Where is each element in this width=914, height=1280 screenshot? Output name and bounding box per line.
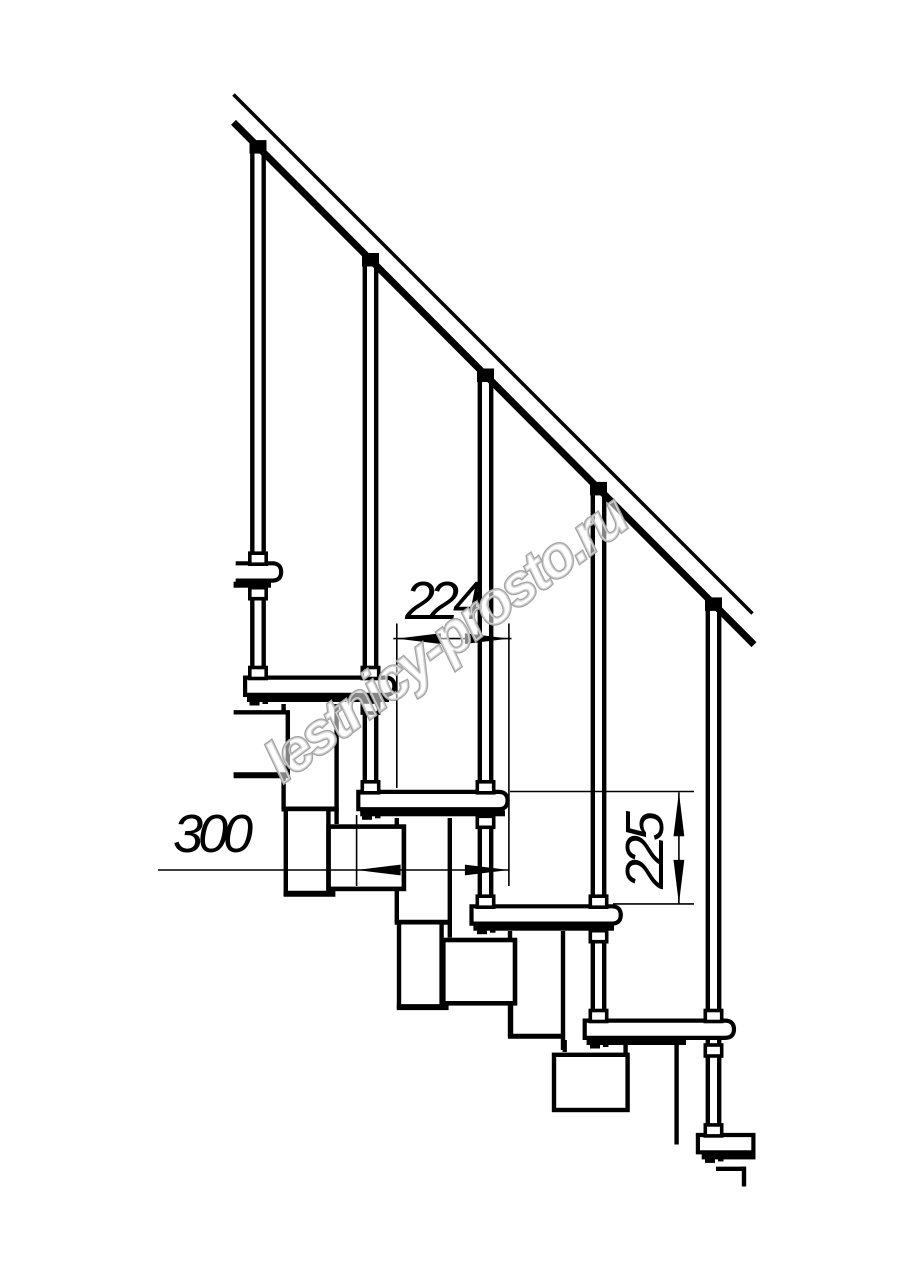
svg-text:lestnicy-prosto.ru: lestnicy-prosto.ru [252, 482, 641, 794]
svg-text:225: 225 [615, 810, 675, 890]
svg-text:300: 300 [173, 804, 253, 864]
